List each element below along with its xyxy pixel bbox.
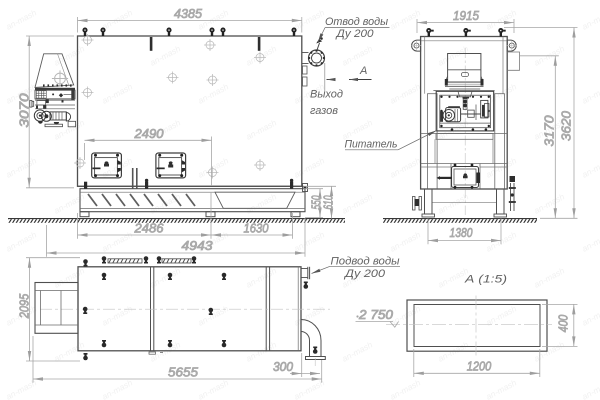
svg-text:Подвод воды: Подвод воды	[331, 256, 400, 268]
svg-text:Выход: Выход	[310, 89, 343, 101]
svg-text:4943: 4943	[182, 238, 214, 253]
svg-text:2490: 2490	[133, 126, 164, 141]
svg-text:3620: 3620	[558, 110, 573, 141]
svg-text:Питатель: Питатель	[345, 139, 398, 151]
svg-text:Ду 200: Ду 200	[343, 268, 386, 280]
svg-text:1200: 1200	[467, 358, 492, 373]
svg-text:Отвод воды: Отвод воды	[325, 16, 388, 28]
svg-text:5655: 5655	[168, 365, 199, 380]
svg-text:610: 610	[321, 195, 336, 209]
svg-text:1630: 1630	[244, 221, 270, 236]
svg-text:400: 400	[556, 314, 571, 332]
svg-text:2 750: 2 750	[358, 307, 394, 322]
svg-text:А: А	[359, 65, 367, 77]
svg-text:1380: 1380	[450, 225, 474, 240]
svg-text:Ду 200: Ду 200	[334, 28, 374, 40]
svg-text:3070: 3070	[16, 93, 31, 128]
svg-text:1915: 1915	[453, 8, 480, 23]
svg-text:2095: 2095	[16, 293, 31, 319]
svg-text:300: 300	[273, 359, 294, 374]
svg-text:газов: газов	[310, 105, 338, 117]
svg-text:2486: 2486	[133, 221, 164, 236]
svg-text:3170: 3170	[541, 115, 556, 147]
svg-text:4385: 4385	[174, 6, 203, 21]
svg-text:А (1:5): А (1:5)	[464, 274, 508, 286]
